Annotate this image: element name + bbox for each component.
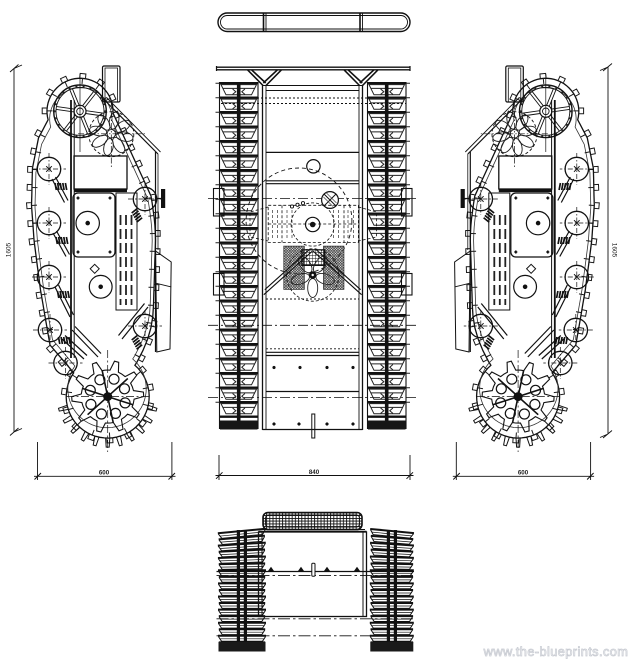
svg-text:600: 600 xyxy=(518,470,529,477)
svg-text:www.the-blueprints.com: www.the-blueprints.com xyxy=(483,644,629,659)
svg-text:600: 600 xyxy=(99,470,110,477)
svg-text:1605: 1605 xyxy=(611,243,618,258)
svg-text:840: 840 xyxy=(309,469,320,476)
svg-text:1605: 1605 xyxy=(6,242,13,257)
